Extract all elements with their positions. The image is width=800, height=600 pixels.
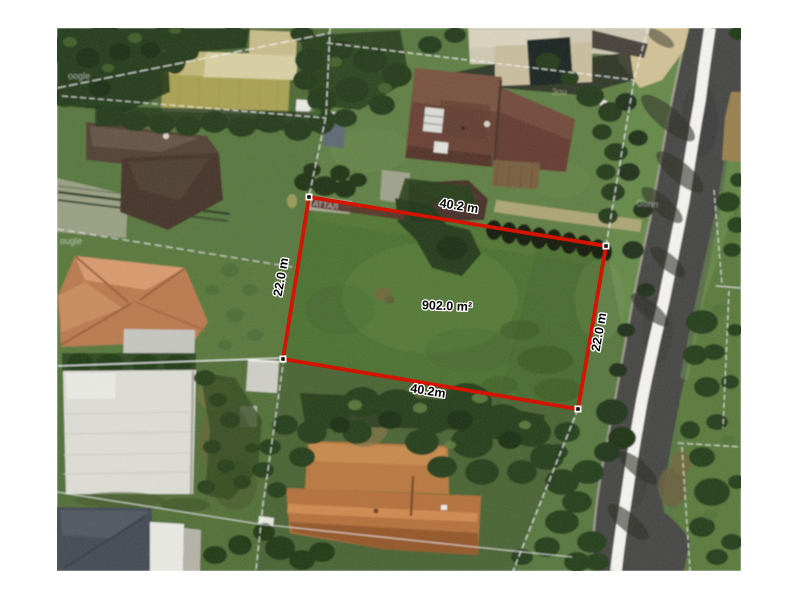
- svg-text:902.0 m²: 902.0 m²: [422, 298, 472, 314]
